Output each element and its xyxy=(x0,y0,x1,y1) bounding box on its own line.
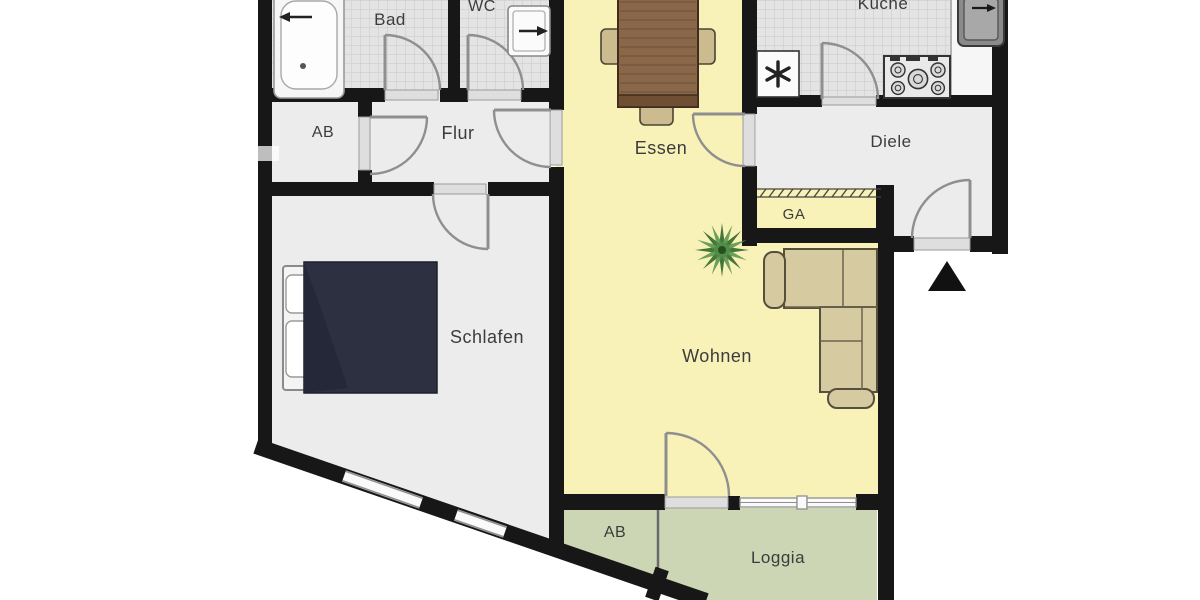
wall-center-vertical-a xyxy=(549,0,564,110)
kitchen-sink-icon xyxy=(958,0,1004,46)
room-label-bad: Bad xyxy=(374,10,406,29)
threshold-ab-door xyxy=(359,117,370,170)
dining-table xyxy=(618,0,698,107)
wc-basin xyxy=(508,6,550,56)
wall-diele-west-a xyxy=(742,95,757,114)
threshold-entry-door xyxy=(914,238,970,250)
room-label-ab-top: AB xyxy=(312,124,334,141)
plant-icon xyxy=(695,223,749,277)
dining-set xyxy=(601,0,715,125)
floor-plan-image: Bad WC Küche AB Flur Essen Diele GA Schl… xyxy=(0,0,1200,600)
entrance-triangle-icon xyxy=(928,261,966,291)
stove-icon xyxy=(884,56,950,98)
room-label-ga: GA xyxy=(783,206,806,223)
threshold-kueche-door xyxy=(822,97,876,105)
threshold-bad-door xyxy=(385,90,438,100)
room-label-ab-bottom: AB xyxy=(604,524,626,541)
room-label-kueche: Küche xyxy=(858,0,909,13)
glare-streak xyxy=(252,146,279,161)
wall-essen-kueche-divider xyxy=(742,0,757,97)
room-label-schlafen: Schlafen xyxy=(450,327,524,347)
bed xyxy=(283,262,437,393)
wall-center-vertical-c xyxy=(549,493,564,555)
threshold-flur-essen-door xyxy=(550,110,562,165)
threshold-wc-door xyxy=(468,90,521,100)
room-label-loggia: Loggia xyxy=(751,548,805,567)
threshold-schlafen-door xyxy=(434,184,486,194)
wall-ab-divider-a xyxy=(358,100,372,117)
wall-center-vertical-b xyxy=(549,167,564,496)
wall-wohnen-south-a xyxy=(549,494,665,510)
wall-ga-east xyxy=(876,185,894,243)
room-label-flur: Flur xyxy=(442,123,475,143)
room-label-wc: WC xyxy=(468,0,496,15)
wall-flur-south-b xyxy=(488,182,564,196)
floor-plan: Bad WC Küche AB Flur Essen Diele GA Schl… xyxy=(0,0,1200,600)
wall-wohnen-south-post xyxy=(728,496,740,510)
room-ga-floor xyxy=(756,188,882,232)
threshold-diele-wohnen-door xyxy=(743,114,755,166)
wall-right-exterior-lower xyxy=(878,236,894,600)
window-loggia-post xyxy=(797,496,807,509)
wall-bad-wc-divider xyxy=(448,0,460,92)
dishwasher-icon xyxy=(757,51,799,97)
room-label-essen: Essen xyxy=(635,138,688,158)
wall-wohnen-south-b xyxy=(856,494,880,510)
bathtub xyxy=(274,0,344,98)
wall-ga-south xyxy=(742,228,888,243)
wall-left-exterior xyxy=(258,0,272,452)
threshold-balcony-door xyxy=(665,497,728,508)
wall-diele-south-b xyxy=(970,236,1008,252)
room-label-wohnen: Wohnen xyxy=(682,346,752,366)
wall-flur-south-a xyxy=(258,182,434,196)
room-label-diele: Diele xyxy=(870,132,911,151)
